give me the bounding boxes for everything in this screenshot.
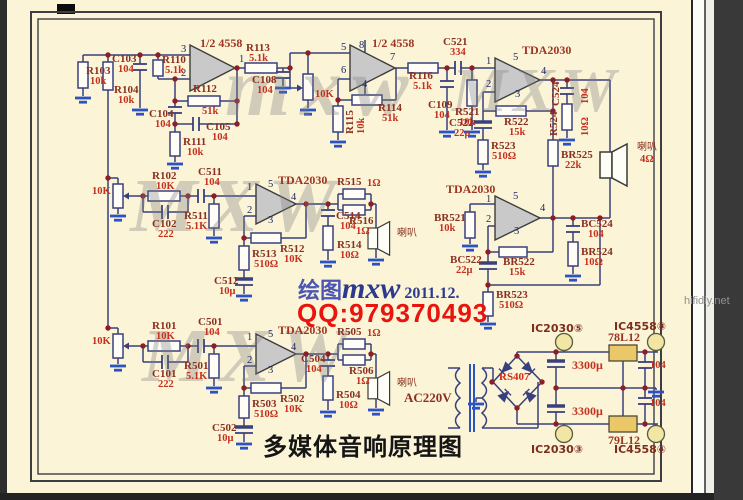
- sch-label: 4: [362, 80, 367, 91]
- sch-label: 2: [247, 206, 252, 217]
- sch-label: 222: [158, 380, 174, 391]
- sch-label: 10μ: [217, 434, 233, 445]
- sch-label: 3: [515, 90, 520, 101]
- sch-label: 5: [268, 180, 273, 191]
- sch-label: 104: [155, 120, 171, 131]
- sch-label: 1: [247, 183, 252, 194]
- sch-label: 15k: [509, 268, 525, 279]
- sch-label: IC4558④: [614, 444, 666, 455]
- sch-label: TDA2030: [278, 174, 327, 186]
- sch-label: 5: [513, 53, 518, 64]
- sch-label: 3300μ: [572, 405, 603, 417]
- sch-label: 334: [450, 48, 466, 59]
- sch-label: R115: [345, 110, 356, 134]
- sch-label: 22μ: [454, 129, 470, 140]
- sch-label: 3: [181, 45, 186, 56]
- sch-label: IC2030⑤: [531, 323, 583, 334]
- sch-label: 3: [268, 216, 273, 227]
- sch-label: 10Ω: [340, 251, 359, 262]
- sch-label: 喇叭: [397, 379, 417, 389]
- sch-label: 3300μ: [572, 359, 603, 371]
- sch-label: 10Ω: [584, 258, 603, 269]
- sch-label: 1: [247, 333, 252, 344]
- sch-label: R524: [549, 112, 560, 136]
- sch-label: 5: [341, 43, 346, 54]
- sch-label: 10k: [439, 224, 455, 235]
- sch-label: 2: [247, 356, 252, 367]
- site-watermark: hifidiy.net: [684, 296, 730, 307]
- sch-label: 4Ω: [640, 155, 654, 166]
- sch-label: 5.1K: [186, 222, 207, 233]
- sch-label: R515: [337, 177, 361, 188]
- sch-label: 10K: [156, 332, 175, 343]
- sch-label: 喇叭: [397, 229, 417, 239]
- sch-label: 1/2 4558: [372, 37, 414, 49]
- sch-label: 10K: [284, 255, 303, 266]
- qq-contact: QQ:979370493: [297, 300, 488, 326]
- sch-label: 104: [434, 111, 450, 122]
- sch-label: 1: [239, 55, 244, 66]
- sch-label: 104: [588, 230, 604, 241]
- sch-label: 10K: [92, 337, 111, 348]
- sch-label: TDA2030: [522, 44, 571, 56]
- sch-label: 3: [268, 366, 273, 377]
- sch-label: 喇叭: [637, 143, 657, 153]
- sch-label: 104: [212, 133, 228, 144]
- sch-label: 510Ω: [499, 301, 523, 312]
- sch-label: 1: [486, 57, 491, 68]
- sch-label: AC220V: [404, 391, 452, 404]
- sch-label: 10Ω: [339, 401, 358, 412]
- transformer-icon: [456, 364, 487, 432]
- sch-label: R505: [337, 327, 361, 338]
- sch-label: 1: [486, 195, 491, 206]
- sch-label: 7: [390, 53, 395, 64]
- sch-label: 4: [541, 67, 546, 78]
- sch-label: 15k: [509, 128, 525, 139]
- sch-label: 2: [181, 69, 186, 80]
- sch-label: 2: [486, 215, 491, 226]
- sch-label: 104: [204, 178, 220, 189]
- sch-label: 5.1K: [186, 372, 207, 383]
- sch-label: 510Ω: [254, 260, 278, 271]
- sch-label: 5: [513, 192, 518, 203]
- sch-label: 104: [204, 328, 220, 339]
- sch-label: C524: [551, 82, 562, 106]
- sch-label: 10K: [156, 182, 175, 193]
- sch-label: 1Ω: [367, 329, 381, 340]
- sch-label: IC4558⑧: [614, 321, 666, 332]
- sch-label: 4: [291, 343, 296, 354]
- sch-label: 510Ω: [254, 410, 278, 421]
- sch-label: 3: [514, 227, 519, 238]
- sch-label: 10k: [90, 77, 106, 88]
- sch-label: 1Ω: [356, 377, 370, 388]
- sch-label: 51k: [382, 114, 398, 125]
- sch-label: 4: [291, 193, 296, 204]
- sch-label: 510Ω: [492, 152, 516, 163]
- sch-label: 5: [268, 330, 273, 341]
- sch-label: RS407: [499, 372, 530, 383]
- sch-label: 8: [359, 41, 364, 52]
- sch-label: 10k: [187, 148, 203, 159]
- sch-label: 4: [540, 204, 545, 215]
- schematic-title: 多媒体音响原理图: [263, 436, 463, 460]
- sch-label: R112: [193, 84, 217, 95]
- sch-label: 104: [340, 222, 356, 233]
- sch-label: 10K: [315, 90, 334, 101]
- sch-label: 104: [650, 399, 666, 410]
- sch-label: 22k: [565, 161, 581, 172]
- sch-label: 222: [158, 230, 174, 241]
- sch-label: 10k: [118, 96, 134, 107]
- sch-label: 51k: [202, 107, 218, 118]
- sch-label: 10k: [357, 118, 368, 134]
- sch-label: IC2030③: [531, 444, 583, 455]
- sch-label: 10K: [284, 405, 303, 416]
- sch-label: 104: [650, 361, 666, 372]
- sch-label: 104: [118, 65, 134, 76]
- sch-label: 104: [306, 365, 322, 376]
- scanned-schematic-screenshot: mxw MXW MXW MXW R10310kR10410kC103104R11…: [0, 0, 743, 500]
- sch-label: 1/2 4558: [200, 37, 242, 49]
- sch-label: 5.1k: [413, 82, 432, 93]
- sch-label: 10Ω: [581, 117, 592, 136]
- sch-label: 2: [486, 80, 491, 91]
- sch-label: 10K: [92, 187, 111, 198]
- sch-label: 6: [341, 66, 346, 77]
- sch-label: 5.1k: [249, 54, 268, 65]
- sch-label: 104: [257, 86, 273, 97]
- sch-label: 1Ω: [356, 227, 370, 238]
- sch-label: 104: [581, 88, 592, 104]
- sch-label: 10μ: [219, 287, 235, 298]
- sch-label: 1Ω: [367, 179, 381, 190]
